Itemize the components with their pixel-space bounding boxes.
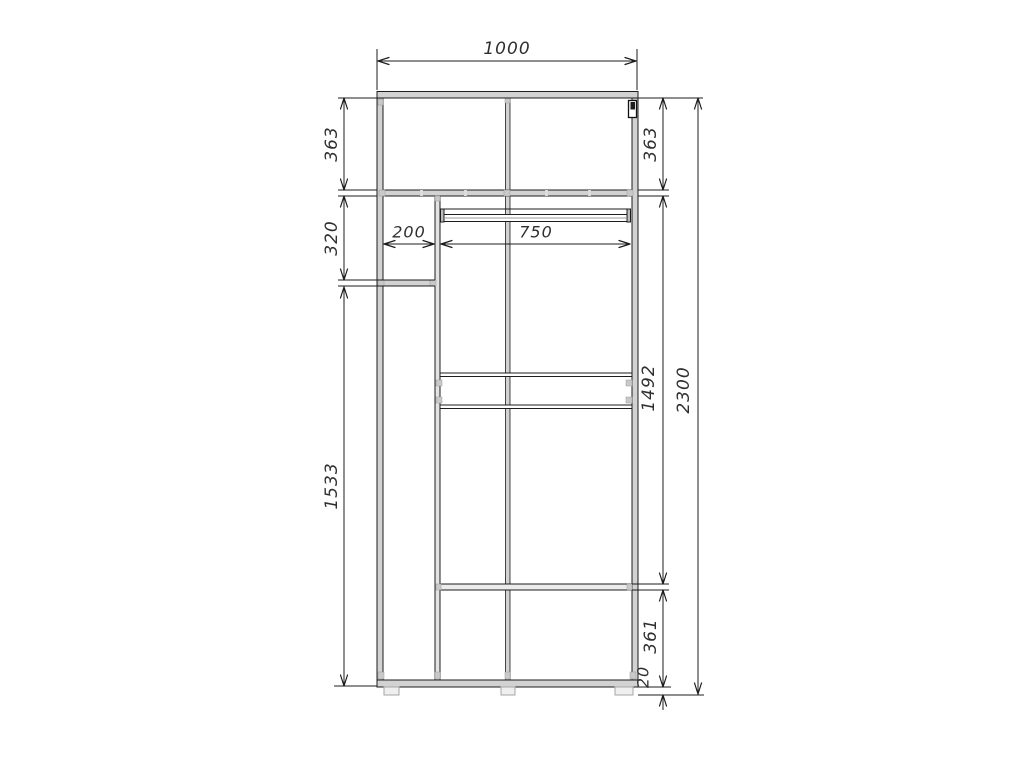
feet xyxy=(384,687,633,695)
dim-label-top-section-height-left: 363 xyxy=(322,126,342,161)
dim-label-total-height: 2300 xyxy=(674,366,694,413)
bottom-shelf xyxy=(440,584,632,590)
foot-center xyxy=(501,687,515,695)
dim-label-main-section-width: 750 xyxy=(519,223,553,242)
dim-label-top-section-height-right: 363 xyxy=(641,126,661,161)
dim-label-left-lower-section: 1533 xyxy=(322,462,342,509)
dim-label-left-upper-section: 320 xyxy=(322,220,342,255)
inner-partition-panel xyxy=(435,196,440,680)
carcass-panels xyxy=(377,92,638,688)
hinge-detail xyxy=(629,101,637,118)
top-panel xyxy=(377,92,638,99)
bottom-panel xyxy=(377,680,638,687)
wardrobe-drawing xyxy=(0,0,1024,768)
middle-shelf-upper xyxy=(440,373,632,377)
rod-end-bracket-right xyxy=(627,209,631,222)
hanging-rod xyxy=(441,209,631,222)
dim-label-bottom-section-height: 361 xyxy=(641,618,661,653)
dim-label-left-section-width: 200 xyxy=(392,223,426,242)
dim-label-main-inner-height: 1492 xyxy=(639,364,659,411)
left-side-panel xyxy=(377,98,383,680)
technical-drawing-canvas: 1000 363 363 320 200 750 1533 1492 2300 … xyxy=(0,0,1024,768)
dim-label-base-height: 20 xyxy=(634,666,653,688)
foot-right xyxy=(615,687,633,695)
left-small-shelf xyxy=(383,280,435,286)
center-divider-panel xyxy=(506,98,511,680)
foot-left xyxy=(384,687,399,695)
rod-end-bracket-left xyxy=(441,209,445,222)
right-side-panel xyxy=(632,98,638,680)
middle-shelf-lower xyxy=(440,405,632,409)
dim-label-total-width: 1000 xyxy=(483,39,530,59)
